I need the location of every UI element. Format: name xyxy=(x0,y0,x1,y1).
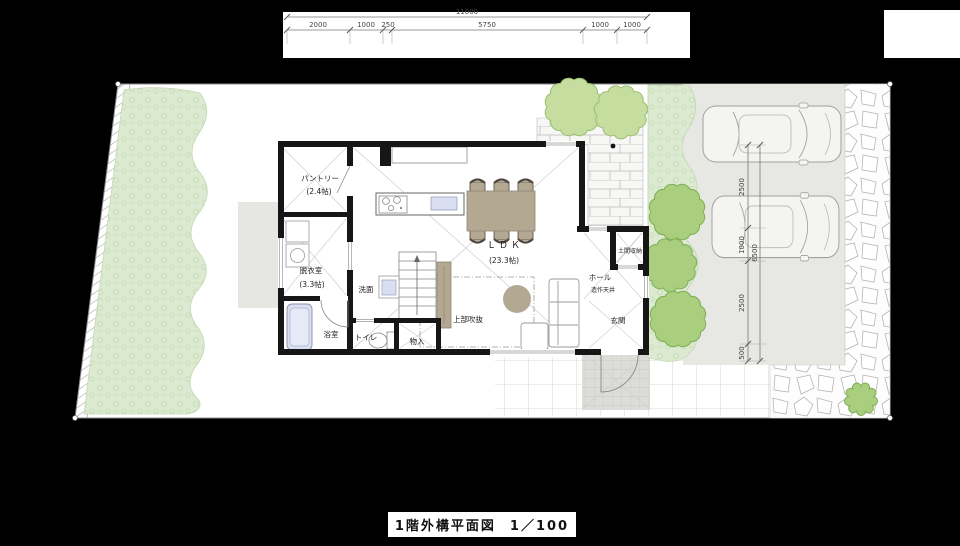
wash-basin xyxy=(379,276,399,298)
kitchen-sink xyxy=(431,197,457,210)
dim-top-seg-5: 1000 xyxy=(623,21,641,29)
dim-top-seg-1: 1000 xyxy=(357,21,375,29)
room-note-hall: 造作天井 xyxy=(591,286,615,294)
dim-right-seg-1: 1000 xyxy=(738,236,746,254)
room-label-doma: 土間収納 xyxy=(618,247,642,255)
room-label-washroom: 洗面 xyxy=(359,284,374,294)
staircase xyxy=(399,252,436,319)
tree-dark-3 xyxy=(650,291,705,346)
room-size-dressing: (3.3帖) xyxy=(299,279,324,289)
drawing-title: 1階外構平面図 xyxy=(395,515,496,534)
drawing-scale: 1／100 xyxy=(510,515,569,534)
dressing-fixtures xyxy=(286,221,309,267)
room-size-ldk: (23.3帖) xyxy=(489,255,519,265)
room-size-pantry: (2.4帖) xyxy=(306,186,331,196)
dim-top-seg-2: 250 xyxy=(381,21,394,29)
kitchen-island xyxy=(376,193,464,215)
bathtub xyxy=(287,304,312,350)
car-1 xyxy=(703,103,841,165)
dimension-strip-bg xyxy=(283,12,690,58)
car-2 xyxy=(712,193,839,261)
dim-top-seg-3: 5750 xyxy=(478,21,496,29)
room-label-pantry: パントリー xyxy=(301,174,339,183)
ottoman xyxy=(521,323,548,350)
dining-table xyxy=(467,191,535,231)
dining-set xyxy=(467,180,535,243)
tree-dark-1 xyxy=(649,184,704,239)
dim-right-total: 6500 xyxy=(751,244,759,262)
room-label-void: 上部吹抜 xyxy=(453,314,483,324)
dim-top-total: 11000 xyxy=(456,8,478,16)
room-label-closet: 物入 xyxy=(410,336,425,346)
post-marker xyxy=(611,144,616,149)
dim-top-seg-4: 1000 xyxy=(591,21,609,29)
round-rug xyxy=(503,285,531,313)
kitchen-counter xyxy=(392,147,467,163)
dim-right-seg-0: 2500 xyxy=(738,178,746,196)
room-label-toilet: トイレ xyxy=(355,333,378,342)
dim-top-seg-0: 2000 xyxy=(309,21,327,29)
drawing-title-box: 1階外構平面図 1／100 xyxy=(388,512,576,537)
room-label-entrance: 玄関 xyxy=(611,315,626,325)
site-plan-svg: パントリー (2.4帖) 脱衣室 (3.3帖) 洗面 浴室 トイレ 物入 上部吹… xyxy=(0,0,960,546)
room-label-hall: ホール xyxy=(589,273,612,282)
room-label-dressing: 脱衣室 xyxy=(300,265,323,275)
top-right-blank-panel xyxy=(884,10,960,58)
room-label-bathroom: 浴室 xyxy=(324,329,339,339)
floor-plan-canvas: パントリー (2.4帖) 脱衣室 (3.3帖) 洗面 浴室 トイレ 物入 上部吹… xyxy=(0,0,960,546)
side-terrace xyxy=(238,202,278,308)
dim-right-seg-2: 2500 xyxy=(738,294,746,312)
parking-apron-tiles xyxy=(683,365,770,418)
room-label-ldk: ＬＤＫ xyxy=(487,241,523,251)
dim-right-seg-3: 500 xyxy=(738,346,746,359)
